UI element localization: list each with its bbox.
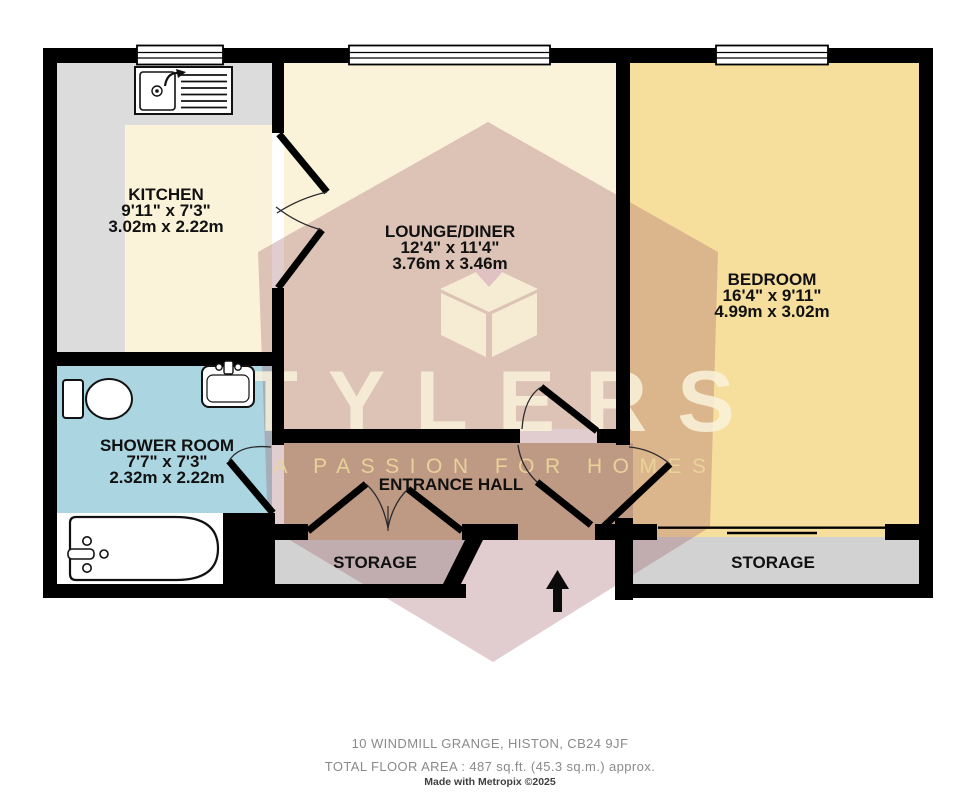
bathtub-icon — [68, 517, 218, 580]
footer-credit: Made with Metropix ©2025 — [424, 776, 556, 788]
lounge-label-group: LOUNGE/DINER 12'4" x 11'4" 3.76m x 3.46m — [385, 222, 515, 273]
wall-storage-right-top — [885, 524, 919, 540]
kitchen-floor — [125, 125, 272, 352]
wall-right — [919, 48, 933, 598]
wall-kitchen-shower — [57, 352, 284, 366]
hall-name: ENTRANCE HALL — [379, 475, 524, 494]
wall-bedroom-left — [616, 63, 630, 445]
wall-t-stub — [615, 518, 633, 526]
storage-right-name: STORAGE — [731, 553, 815, 572]
wall-storage-left-top — [275, 524, 308, 540]
bedroom-window — [716, 46, 828, 65]
kitchen-window — [137, 46, 223, 65]
wall-shower-hall — [272, 366, 284, 445]
wall-bottom-left — [43, 584, 466, 598]
wall-bottom-right — [615, 584, 933, 598]
wall-left — [43, 48, 57, 598]
footer: 10 WINDMILL GRANGE, HISTON, CB24 9JF TOT… — [325, 736, 655, 788]
floorplan-canvas: TYLERS A PASSION FOR HOMES — [0, 0, 980, 796]
storage-left-name: STORAGE — [333, 553, 417, 572]
footer-address: 10 WINDMILL GRANGE, HISTON, CB24 9JF — [352, 736, 629, 751]
bedroom-label-group: BEDROOM 16'4" x 9'11" 4.99m x 3.02m — [714, 270, 829, 321]
floorplan-page: TYLERS A PASSION FOR HOMES — [0, 0, 980, 796]
footer-total-area: TOTAL FLOOR AREA : 487 sq.ft. (45.3 sq.m… — [325, 759, 655, 774]
kitchen-sink-icon — [135, 67, 232, 114]
toilet-icon — [63, 379, 132, 419]
wall-shower-corner-block — [223, 513, 275, 584]
wall-kitchen-lounge-upper — [272, 63, 284, 133]
wall-lounge-hall-left — [284, 429, 520, 443]
wall-storage-right-left — [615, 540, 633, 600]
kitchen-dims-metric: 3.02m x 2.22m — [108, 217, 223, 236]
shower-dims-metric: 2.32m x 2.22m — [109, 468, 224, 487]
wash-basin-icon — [202, 361, 254, 407]
lounge-window — [349, 46, 550, 65]
bedroom-dims-metric: 4.99m x 3.02m — [714, 302, 829, 321]
lounge-dims-metric: 3.76m x 3.46m — [392, 254, 507, 273]
